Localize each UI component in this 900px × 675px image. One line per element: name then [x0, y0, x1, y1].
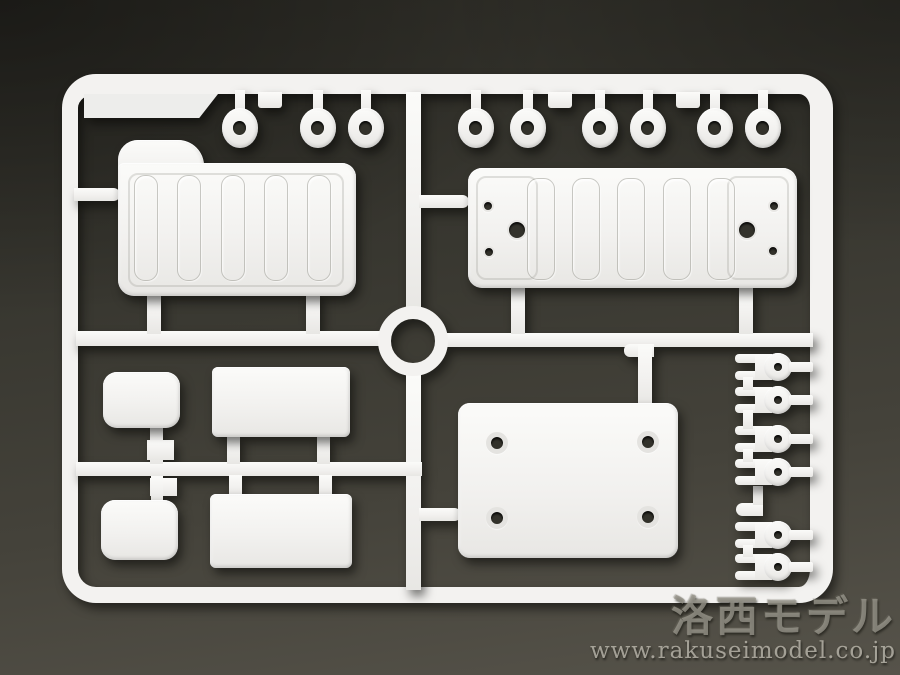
fork-shaft [789, 395, 813, 405]
fork-layer [0, 0, 900, 675]
part-fork-rod-end [735, 458, 813, 486]
fork-link-stub [743, 410, 753, 429]
fork-hole [774, 468, 782, 476]
part-fork-rod-end [735, 553, 813, 581]
parts-layer [0, 0, 900, 675]
watermark: 洛西モデル www.rakuseimodel.co.jp [476, 594, 896, 664]
fork-link-stub [743, 449, 753, 462]
fork-hole [774, 435, 782, 443]
fork-shaft [789, 467, 813, 477]
fork-hole [774, 363, 782, 371]
fork-hole [774, 531, 782, 539]
fork-hole [774, 563, 782, 571]
fork-shaft [789, 362, 813, 372]
fork-link-stub [743, 377, 753, 390]
watermark-url: www.rakuseimodel.co.jp [476, 638, 896, 664]
fork-shaft [789, 434, 813, 444]
photo-background: 洛西モデル www.rakuseimodel.co.jp [0, 0, 900, 675]
watermark-logo: 洛西モデル [476, 594, 896, 640]
fork-link-stub [743, 545, 753, 557]
fork-hole [774, 396, 782, 404]
fork-shaft [789, 530, 813, 540]
fork-shaft [789, 562, 813, 572]
